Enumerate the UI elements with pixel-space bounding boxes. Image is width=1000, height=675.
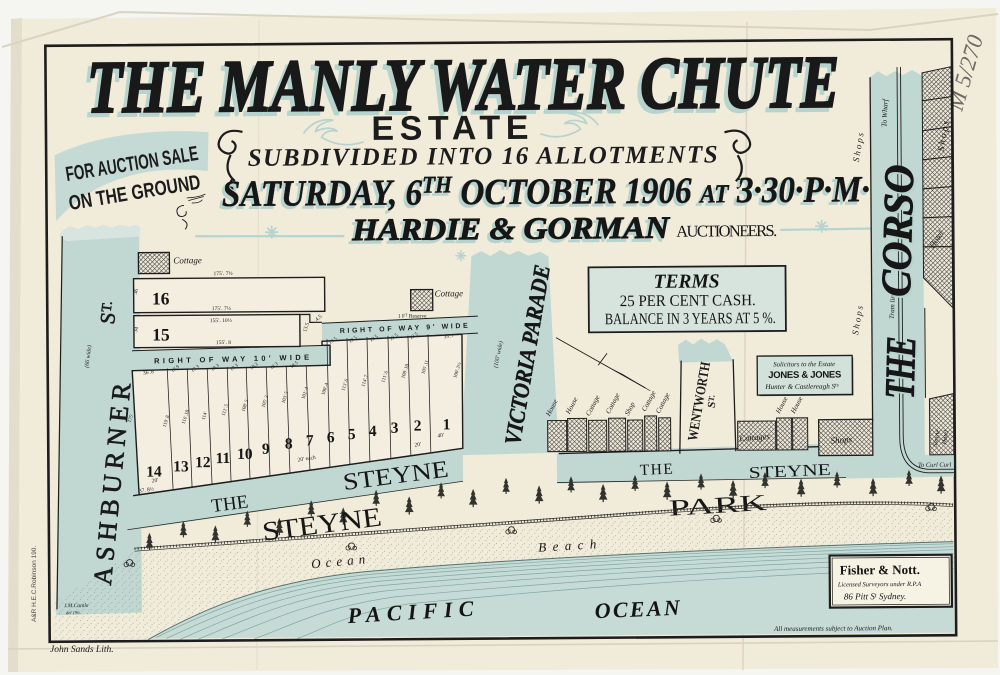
svg-text:Cottage: Cottage <box>435 288 464 298</box>
svg-text:AUCTIONEERS.: AUCTIONEERS. <box>676 221 777 241</box>
svg-text:12: 12 <box>195 454 211 471</box>
svg-text:15: 15 <box>152 324 170 344</box>
svg-text:20′: 20′ <box>151 478 159 485</box>
svg-text:Licensed Surveyors under R.P.A: Licensed Surveyors under R.P.A <box>837 581 922 589</box>
svg-text:175′. 7½: 175′. 7½ <box>212 305 231 312</box>
svg-text:A&R H.E.C.Robinson 190.: A&R H.E.C.Robinson 190. <box>31 546 38 622</box>
svg-text:16: 16 <box>152 288 170 308</box>
svg-text:8: 8 <box>285 436 293 453</box>
svg-text:BALANCE IN 3 YEARS AT 5 %.: BALANCE IN 3 YEARS AT 5 %. <box>605 310 776 328</box>
svg-text:Fisher & Nott.: Fisher & Nott. <box>840 562 920 578</box>
svg-text:5: 5 <box>348 426 356 443</box>
svg-text:THE: THE <box>639 461 673 479</box>
svg-text:STEYNE: STEYNE <box>748 460 831 482</box>
svg-text:SATURDAY, 6TH OCTOBER 1906 AT: SATURDAY, 6TH OCTOBER 1906 AT 3·30·P·M· <box>222 169 870 215</box>
svg-text:175′. 7½: 175′. 7½ <box>213 270 232 277</box>
svg-text:Hunter & Castlereagh Sts: Hunter & Castlereagh Sts <box>764 383 838 392</box>
svg-text:10: 10 <box>237 446 253 463</box>
svg-text:4: 4 <box>369 423 377 440</box>
svg-text:SUBDIVIDED INTO 16 ALLOTMENTS: SUBDIVIDED INTO 16 ALLOTMENTS <box>248 141 718 171</box>
svg-text:To Curl Curl: To Curl Curl <box>918 462 952 469</box>
svg-text:13: 13 <box>173 458 189 475</box>
svg-text:Shops: Shops <box>830 434 853 446</box>
svg-text:155′. 10½: 155′. 10½ <box>210 317 232 324</box>
svg-text:20′: 20′ <box>414 442 422 449</box>
svg-text:1 FT Reserve: 1 FT Reserve <box>398 312 427 320</box>
svg-text:HARDIE & GORMAN: HARDIE & GORMAN <box>351 210 671 247</box>
svg-text:All measurements subject to Au: All measurements subject to Auction Plan… <box>773 624 893 633</box>
svg-text:25 PER CENT CASH.: 25 PER CENT CASH. <box>620 292 756 310</box>
svg-text:TERMS: TERMS <box>653 270 719 292</box>
svg-text:JONES & JONES: JONES & JONES <box>768 369 841 381</box>
svg-text:155′. 8: 155′. 8 <box>216 340 231 346</box>
svg-text:1: 1 <box>443 416 451 433</box>
svg-text:9: 9 <box>262 441 270 458</box>
svg-text:OCEAN: OCEAN <box>594 595 681 624</box>
svg-text:del 190.: del 190. <box>66 610 81 615</box>
svg-text:11: 11 <box>215 450 230 467</box>
svg-text:THE: THE <box>877 336 925 399</box>
svg-text:Cottage: Cottage <box>173 255 202 265</box>
svg-text:2: 2 <box>414 418 422 435</box>
svg-text:J.M.Cantle: J.M.Cantle <box>64 603 89 609</box>
svg-text:To Wharf: To Wharf <box>879 98 889 127</box>
svg-text:Solicitors to the Estate: Solicitors to the Estate <box>773 361 835 368</box>
svg-text:6: 6 <box>327 429 335 446</box>
svg-text:CORSO: CORSO <box>874 164 924 297</box>
svg-text:3: 3 <box>391 420 399 437</box>
svg-text:40′: 40′ <box>437 433 445 440</box>
svg-text:7: 7 <box>306 432 314 449</box>
svg-text:John Sands Lith.: John Sands Lith. <box>50 645 114 655</box>
